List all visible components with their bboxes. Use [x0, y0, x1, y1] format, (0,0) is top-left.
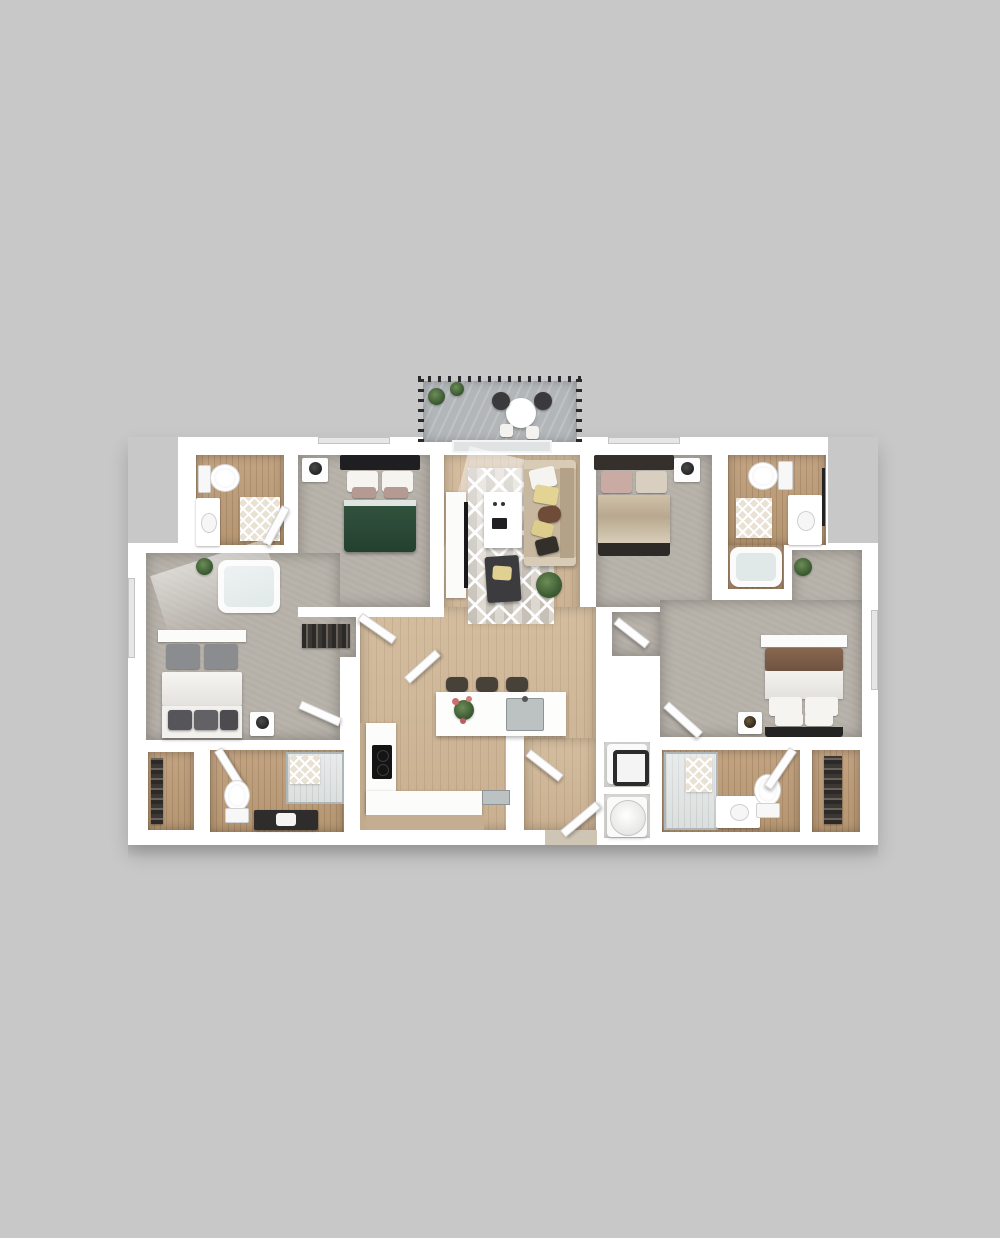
balcony-plant-icon — [428, 388, 445, 405]
pillow — [805, 713, 833, 726]
coffee-table — [484, 492, 522, 548]
pillow-yellow — [492, 565, 512, 580]
bed-top-right — [598, 455, 670, 556]
balcony-railing-left — [418, 376, 424, 442]
balcony-railing-top — [418, 376, 582, 382]
ground-shadow — [128, 845, 878, 859]
sink-icon — [201, 513, 217, 533]
wall-bed2-hall — [298, 607, 444, 617]
pillow-gray — [166, 644, 200, 669]
bed-left — [162, 630, 242, 738]
vanity-top-left — [196, 498, 220, 546]
dishwasher — [482, 790, 510, 805]
bench-pillow-dark — [220, 710, 238, 730]
headboard — [340, 455, 420, 470]
lamp-icon — [256, 716, 269, 729]
sofa-arm — [524, 557, 576, 566]
window-top-right-bedroom — [608, 437, 680, 444]
closet-shelf-items — [151, 758, 163, 824]
toilet-tank — [778, 461, 793, 490]
blanket-brown — [765, 648, 843, 671]
patio-chair — [492, 392, 510, 410]
headboard-dark — [765, 727, 843, 737]
burner-icon — [377, 764, 389, 776]
armchair — [484, 555, 521, 603]
shower-bottom-left — [286, 752, 344, 804]
plant-icon — [196, 558, 213, 575]
laptop-icon — [492, 518, 507, 529]
sink-icon — [276, 813, 296, 826]
kitchen-island — [436, 692, 566, 736]
bath-mat — [736, 498, 772, 538]
pillow — [775, 713, 803, 726]
cabinet-strip — [366, 815, 484, 830]
duvet-tan — [598, 495, 670, 543]
duvet-white — [162, 672, 242, 706]
accent-pillow — [352, 487, 376, 498]
duvet-white — [765, 671, 843, 699]
notch-top-left — [128, 437, 178, 543]
pillow-yellow — [533, 484, 560, 506]
bar-stool — [446, 677, 468, 692]
flower-pink-icon — [452, 698, 459, 705]
flower-pink-icon — [460, 718, 466, 724]
toilet-icon — [210, 464, 240, 492]
washer — [607, 744, 647, 784]
tv-console — [446, 492, 466, 598]
toilet-tank — [756, 803, 780, 818]
screenshot-canvas: { "scene": { "type": "3d-floor-plan-rend… — [0, 0, 1000, 1238]
shower-tile — [686, 758, 712, 792]
towel-bar — [822, 468, 825, 526]
window-top-left-bedroom — [318, 437, 390, 444]
patio-chair — [534, 392, 552, 410]
headboard-white — [158, 630, 246, 642]
dryer-drum — [610, 800, 646, 836]
duvet-green — [344, 500, 416, 552]
bar-stool — [476, 677, 498, 692]
vanity-bottom-right — [716, 796, 760, 828]
sofa — [524, 460, 576, 566]
dryer — [607, 797, 647, 837]
window-right-bedroom — [871, 610, 878, 690]
vanity-dark — [254, 810, 318, 830]
bench-pillow-dark — [168, 710, 192, 730]
balcony-railing-right — [576, 376, 582, 442]
laundry-closet — [602, 740, 652, 840]
kitchen-counter-bottom — [366, 791, 482, 815]
pillow-cream — [636, 471, 667, 493]
washer-door — [613, 750, 649, 786]
footboard-white — [761, 635, 847, 647]
bench-pillow-dark — [194, 710, 218, 730]
plant-icon — [536, 572, 562, 598]
island-sink — [506, 698, 544, 731]
shower-tile — [290, 756, 320, 784]
sofa-back — [560, 468, 574, 558]
decor-dot — [493, 502, 497, 506]
faucet-icon — [522, 696, 528, 702]
lamp-icon — [309, 462, 322, 475]
window-left-bedroom — [128, 578, 135, 658]
duvet-fold — [344, 500, 416, 506]
toilet-icon — [748, 462, 778, 490]
plant-icon — [794, 558, 812, 576]
balcony-glass-door — [452, 440, 552, 453]
lamp-gold-icon — [744, 716, 756, 728]
bar-stool — [506, 677, 528, 692]
lamp-icon — [681, 462, 694, 475]
notch-top-right — [828, 437, 878, 543]
wall-kitchen-entry — [506, 732, 524, 830]
balcony-plant-icon — [450, 382, 464, 396]
tv-icon — [464, 502, 468, 588]
vanity-top-right — [788, 495, 822, 545]
pillow-blush — [601, 471, 632, 493]
cooktop — [372, 745, 392, 779]
accent-pillow — [384, 487, 408, 498]
patio-stool — [526, 426, 539, 439]
balcony — [418, 376, 582, 442]
flower-pink-icon — [466, 696, 472, 702]
sink-icon — [730, 804, 749, 821]
pillow-dark — [534, 536, 559, 557]
bathtub-top-right — [730, 547, 782, 587]
hanging-clothes — [824, 756, 842, 824]
headboard — [594, 455, 674, 470]
bed-top-left — [344, 455, 416, 552]
toilet-icon — [224, 780, 250, 811]
burner-icon — [377, 750, 389, 762]
toilet-tank — [225, 808, 249, 823]
hanging-clothes — [302, 624, 350, 648]
patio-stool — [500, 424, 513, 437]
sink-icon — [797, 511, 815, 531]
bathtub-top-left — [218, 560, 280, 613]
pillow-gray — [204, 644, 238, 669]
bed-right — [765, 635, 843, 737]
decor-dot — [501, 502, 505, 506]
footboard — [598, 543, 670, 556]
shower-bottom-right — [664, 752, 718, 830]
